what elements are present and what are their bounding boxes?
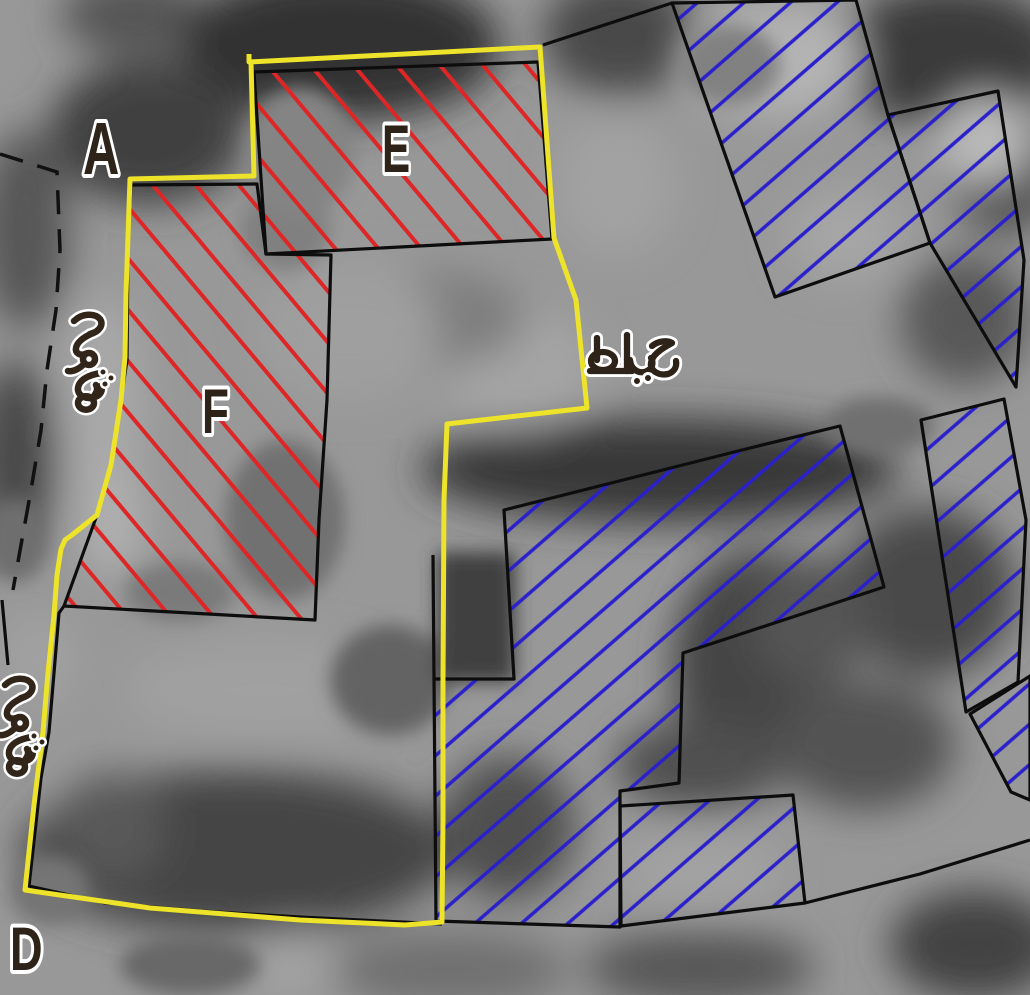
svg-text:F: F [202, 376, 229, 447]
svg-text:A: A [83, 109, 119, 191]
svg-text:D: D [10, 915, 43, 983]
svg-text:E: E [382, 111, 410, 187]
